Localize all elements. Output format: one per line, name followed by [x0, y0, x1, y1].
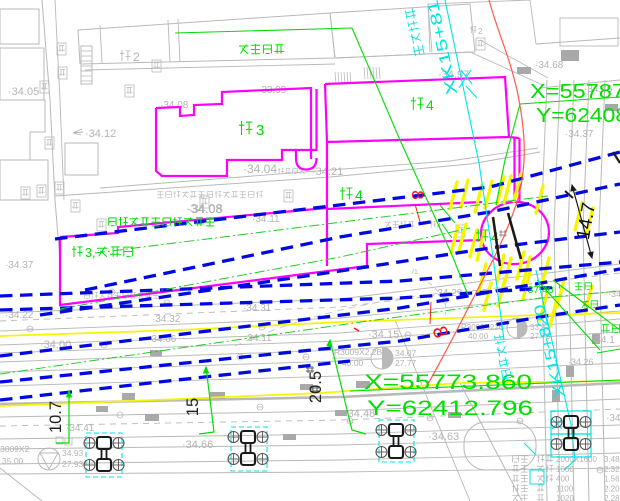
svg-text:34.07: 34.07	[395, 348, 417, 358]
svg-text:·34.11: ·34.11	[244, 333, 272, 344]
svg-text:4: 4	[426, 97, 434, 113]
svg-text:·34: ·34	[606, 413, 620, 424]
svg-text:27.93: 27.93	[62, 459, 84, 469]
svg-text:2: 2	[133, 50, 140, 64]
svg-text:1100: 1100	[556, 484, 574, 493]
svg-text:·34.08: ·34.08	[160, 100, 189, 111]
svg-text:·34.05: ·34.05	[8, 86, 39, 98]
svg-text:2.28: 2.28	[604, 494, 620, 501]
svg-text:2.20: 2.20	[604, 484, 620, 493]
svg-text:2.32: 2.32	[604, 465, 620, 474]
svg-text:X=55787: X=55787	[530, 81, 620, 103]
svg-text:·34.15: ·34.15	[368, 329, 399, 341]
svg-text:10.7: 10.7	[47, 401, 65, 433]
svg-text:15: 15	[184, 398, 202, 416]
svg-text:·34.08: ·34.08	[186, 201, 223, 216]
svg-text:X=55773.860: X=55773.860	[364, 370, 532, 394]
svg-text:·34.63: ·34.63	[428, 431, 459, 443]
svg-text:·34.26: ·34.26	[568, 357, 594, 367]
svg-text:400: 400	[556, 475, 570, 484]
svg-text:·34.0: ·34.0	[608, 289, 620, 299]
svg-text:2: 2	[478, 27, 483, 36]
svg-text:·34.04: ·34.04	[243, 162, 277, 176]
svg-text:1020: 1020	[556, 494, 574, 501]
svg-text:20.5: 20.5	[307, 371, 325, 403]
svg-text:40.00: 40.00	[468, 332, 489, 341]
svg-text:/1: /1	[412, 269, 418, 276]
svg-text:35.00: 35.00	[2, 456, 24, 466]
svg-text:8: 8	[408, 190, 427, 199]
svg-text:3,: 3,	[85, 246, 95, 260]
svg-text:Y=62408: Y=62408	[536, 105, 620, 127]
svg-text:4: 4	[355, 187, 363, 203]
svg-text:3009X2: 3009X2	[0, 444, 30, 454]
svg-text:Y=62412.796: Y=62412.796	[367, 396, 533, 420]
svg-text:3: 3	[256, 122, 264, 139]
svg-text:·34.12: ·34.12	[85, 128, 116, 140]
svg-text:27.77: 27.77	[395, 358, 417, 368]
svg-text:·34.41: ·34.41	[66, 423, 95, 434]
svg-text:1.56: 1.56	[604, 475, 620, 484]
svg-text:·34.31: ·34.31	[243, 303, 272, 314]
svg-text:·34.37: ·34.37	[5, 260, 34, 271]
svg-text:·34.68: ·34.68	[535, 60, 564, 71]
svg-text:·34.66: ·34.66	[182, 439, 213, 451]
svg-text:·34.37: ·34.37	[565, 129, 594, 140]
svg-text:3.48: 3.48	[604, 455, 620, 464]
svg-text:·34.32: ·34.32	[152, 314, 181, 325]
svg-text:·34.22: ·34.22	[5, 310, 34, 321]
svg-text:34.93: 34.93	[62, 448, 84, 458]
